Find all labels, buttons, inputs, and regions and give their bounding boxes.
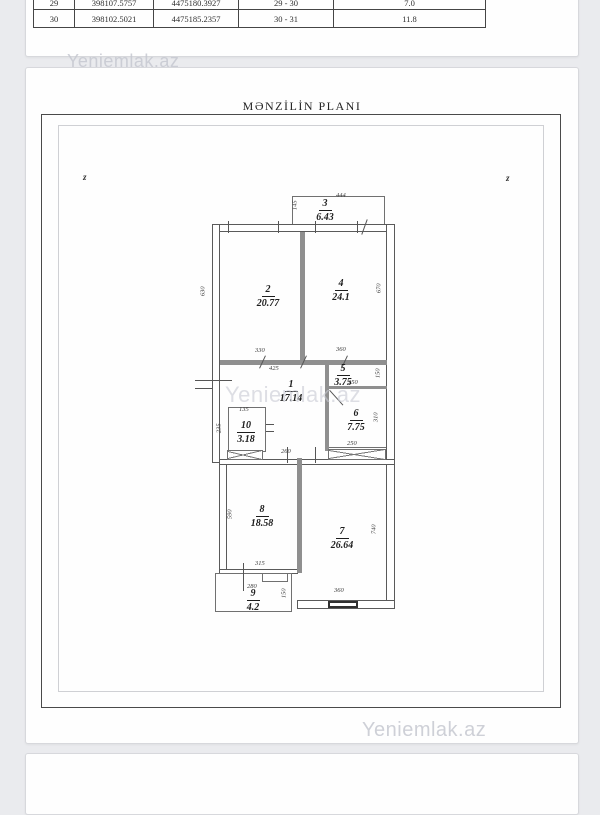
orientation-mark-left: z (83, 172, 87, 182)
segment-cell: 30 - 31 (239, 10, 334, 28)
page-title: MƏNZİLİN PLANI (26, 99, 578, 114)
plan-inner-frame (58, 125, 544, 692)
watermark-bottom: Yeniemlak.az (362, 719, 486, 742)
point-number-cell: 30 (34, 10, 75, 28)
coordinates-table: 29 398107.5757 4475180.3927 29 - 30 7.0 … (33, 0, 486, 28)
length-cell: 11.8 (334, 10, 486, 28)
watermark-top: Yeniemlak.az (67, 51, 179, 72)
page-1: 29 398107.5757 4475180.3927 29 - 30 7.0 … (25, 0, 579, 57)
table-row: 29 398107.5757 4475180.3927 29 - 30 7.0 (34, 0, 486, 10)
x-coordinate-cell: 398107.5757 (75, 0, 154, 10)
length-cell: 7.0 (334, 0, 486, 10)
x-coordinate-cell: 398102.5021 (75, 10, 154, 28)
point-number-cell: 29 (34, 0, 75, 10)
segment-cell: 29 - 30 (239, 0, 334, 10)
table-row: 30 398102.5021 4475185.2357 30 - 31 11.8 (34, 10, 486, 28)
y-coordinate-cell: 4475185.2357 (154, 10, 239, 28)
y-coordinate-cell: 4475180.3927 (154, 0, 239, 10)
page-3 (25, 753, 579, 815)
orientation-mark-right: z (506, 173, 510, 183)
watermark-center: Yeniemlak.az (225, 382, 361, 408)
